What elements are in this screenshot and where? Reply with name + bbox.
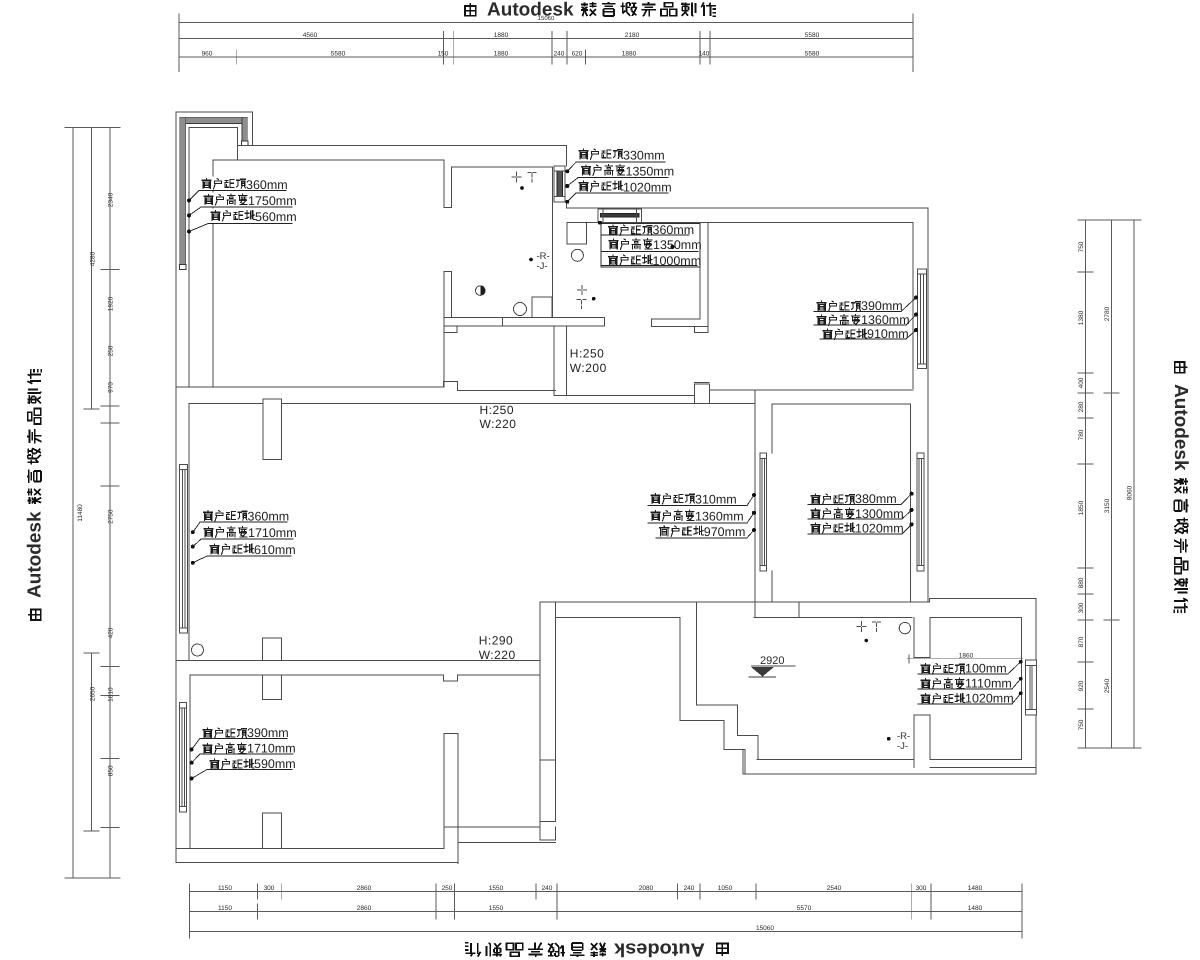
svg-text:240: 240 bbox=[542, 885, 553, 892]
svg-text:390mm: 390mm bbox=[247, 726, 289, 740]
svg-text:610mm: 610mm bbox=[254, 543, 296, 557]
svg-text:1880: 1880 bbox=[622, 51, 637, 58]
svg-text:2860: 2860 bbox=[357, 905, 372, 912]
svg-text:1550: 1550 bbox=[489, 905, 504, 912]
svg-text:970: 970 bbox=[108, 382, 115, 393]
svg-text:100mm: 100mm bbox=[965, 661, 1007, 675]
svg-text:1750mm: 1750mm bbox=[248, 194, 297, 208]
svg-text:1850: 1850 bbox=[1078, 500, 1085, 515]
svg-text:2860: 2860 bbox=[357, 885, 372, 892]
svg-text:400: 400 bbox=[1078, 377, 1085, 388]
svg-text:W:220: W:220 bbox=[479, 648, 516, 662]
svg-text:1020mm: 1020mm bbox=[855, 521, 904, 535]
svg-text:1360mm: 1360mm bbox=[695, 509, 744, 523]
svg-text:870: 870 bbox=[1078, 636, 1085, 647]
svg-text:1480: 1480 bbox=[968, 905, 983, 912]
svg-text:620: 620 bbox=[572, 51, 583, 58]
svg-text:1020mm: 1020mm bbox=[965, 691, 1014, 705]
svg-text:-J-: -J- bbox=[537, 261, 548, 272]
svg-text:1050: 1050 bbox=[718, 885, 733, 892]
svg-text:5580: 5580 bbox=[805, 51, 820, 58]
svg-text:880: 880 bbox=[1078, 577, 1085, 588]
svg-text:1810: 1810 bbox=[108, 687, 115, 702]
svg-text:1150: 1150 bbox=[218, 905, 232, 912]
svg-text:240: 240 bbox=[684, 885, 695, 892]
svg-text:2180: 2180 bbox=[625, 32, 640, 39]
svg-text:920: 920 bbox=[1078, 680, 1085, 691]
svg-text:5580: 5580 bbox=[331, 51, 346, 58]
svg-text:330mm: 330mm bbox=[623, 148, 665, 162]
svg-text:150: 150 bbox=[438, 51, 449, 58]
svg-text:2780: 2780 bbox=[1104, 306, 1111, 321]
svg-text:5580: 5580 bbox=[805, 32, 820, 39]
svg-text:1350mm: 1350mm bbox=[653, 238, 702, 252]
svg-text:750: 750 bbox=[1078, 719, 1085, 730]
svg-text:4280: 4280 bbox=[90, 251, 97, 266]
svg-text:300: 300 bbox=[916, 885, 927, 892]
svg-text:360mm: 360mm bbox=[246, 178, 288, 192]
svg-text:4560: 4560 bbox=[303, 32, 318, 39]
svg-text:590mm: 590mm bbox=[254, 757, 296, 771]
svg-text:420: 420 bbox=[108, 627, 115, 638]
svg-text:1710mm: 1710mm bbox=[248, 526, 297, 540]
svg-text:140: 140 bbox=[699, 51, 710, 58]
svg-text:970mm: 970mm bbox=[704, 525, 746, 539]
svg-text:1880: 1880 bbox=[494, 32, 509, 39]
svg-text:1550: 1550 bbox=[489, 885, 504, 892]
svg-text:-J-: -J- bbox=[897, 741, 908, 752]
svg-text:2920: 2920 bbox=[760, 655, 784, 667]
svg-text:1920: 1920 bbox=[108, 296, 115, 311]
svg-text:310mm: 310mm bbox=[695, 492, 737, 506]
svg-text:250: 250 bbox=[108, 345, 115, 356]
svg-text:1880: 1880 bbox=[494, 51, 509, 58]
svg-text:W:220: W:220 bbox=[480, 417, 517, 431]
svg-text:2340: 2340 bbox=[108, 192, 115, 207]
svg-text:1710mm: 1710mm bbox=[247, 741, 296, 755]
svg-text:2540: 2540 bbox=[1104, 678, 1111, 693]
svg-text:2540: 2540 bbox=[827, 885, 842, 892]
svg-text:850: 850 bbox=[108, 765, 115, 776]
svg-text:300: 300 bbox=[1078, 602, 1085, 613]
svg-text:280: 280 bbox=[1078, 401, 1085, 412]
svg-text:H:250: H:250 bbox=[480, 403, 515, 417]
svg-text:2750: 2750 bbox=[108, 509, 115, 524]
svg-text:5570: 5570 bbox=[797, 905, 812, 912]
svg-text:780: 780 bbox=[1078, 429, 1085, 440]
svg-text:H:250: H:250 bbox=[570, 347, 605, 361]
svg-text:360mm: 360mm bbox=[248, 509, 290, 523]
svg-text:1480: 1480 bbox=[968, 885, 983, 892]
svg-text:300: 300 bbox=[264, 885, 275, 892]
svg-text:1150: 1150 bbox=[218, 885, 232, 892]
svg-text:H:290: H:290 bbox=[479, 634, 514, 648]
svg-text:960: 960 bbox=[202, 51, 213, 58]
svg-text:2080: 2080 bbox=[639, 885, 654, 892]
svg-text:1110mm: 1110mm bbox=[965, 676, 1012, 690]
svg-text:250: 250 bbox=[442, 885, 453, 892]
svg-text:1380: 1380 bbox=[1078, 310, 1085, 325]
svg-text:1860: 1860 bbox=[959, 653, 974, 660]
svg-text:1350mm: 1350mm bbox=[626, 164, 675, 178]
svg-text:380mm: 380mm bbox=[855, 492, 897, 506]
svg-text:240: 240 bbox=[554, 51, 565, 58]
svg-text:W:200: W:200 bbox=[570, 361, 607, 375]
svg-text:11480: 11480 bbox=[77, 504, 84, 522]
svg-text:750: 750 bbox=[1078, 241, 1085, 252]
svg-text:3150: 3150 bbox=[1104, 498, 1111, 513]
svg-text:2650: 2650 bbox=[90, 686, 97, 701]
svg-text:15060: 15060 bbox=[756, 925, 774, 932]
svg-text:1020mm: 1020mm bbox=[623, 180, 672, 194]
svg-text:390mm: 390mm bbox=[861, 299, 903, 313]
svg-text:560mm: 560mm bbox=[255, 210, 297, 224]
svg-text:8060: 8060 bbox=[1127, 485, 1134, 500]
